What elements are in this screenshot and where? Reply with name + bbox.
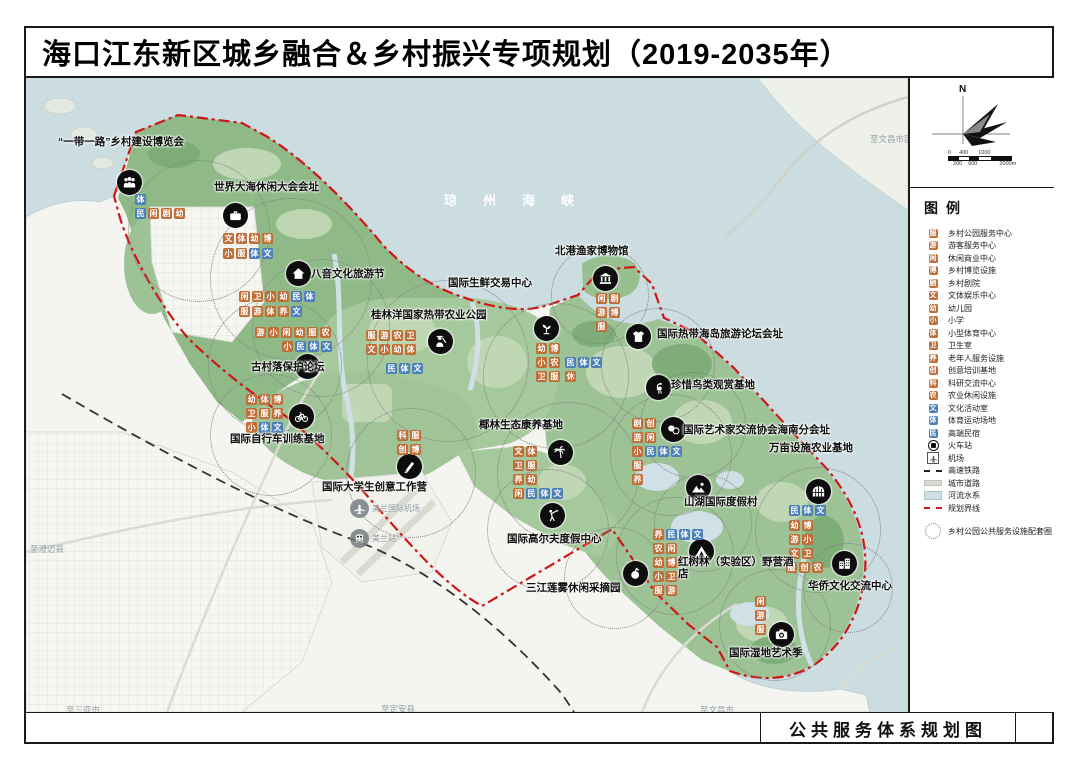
site-label: 华侨文化交流中心 (808, 580, 892, 592)
shirt-icon (626, 324, 651, 349)
legend-item: 幼幼儿园 (924, 302, 1054, 314)
facility-badge: 博 (666, 557, 677, 568)
edge-destination-label: 至澄迈县 (30, 543, 64, 555)
facility-badge: 小 (802, 534, 813, 545)
edge-destination-label: 至定安县 (381, 703, 415, 712)
site-label: 八音文化旅游节 (311, 268, 385, 280)
legend-item: 游游客服务中心 (924, 240, 1054, 252)
legend-item: 服乡村公园服务中心 (924, 227, 1054, 239)
legend-badge: 小 (924, 316, 942, 325)
legend-item: 创创意培训基地 (924, 365, 1054, 377)
facility-badge: 闲 (645, 432, 656, 443)
facility-badge: 休 (565, 371, 576, 382)
facility-badge: 民 (565, 357, 576, 368)
facility-badge: 体 (399, 363, 410, 374)
facility-badge: 民 (645, 446, 656, 457)
facility-badge: 剧 (632, 418, 643, 429)
facility-badge-row: 服 (632, 460, 645, 471)
farmer-icon (428, 329, 453, 354)
facility-badge-row: 小民体文 (632, 446, 684, 457)
facility-badge: 文 (591, 357, 602, 368)
case-icon (223, 203, 248, 228)
facility-badge: 体 (236, 233, 247, 244)
legend-item: 小小学 (924, 315, 1054, 327)
legend-item: 体体育运动场地 (924, 415, 1054, 427)
coverage-circle-swatch (924, 523, 942, 539)
facility-badge-row: 民体文 (565, 357, 604, 368)
facility-badge: 幼 (536, 343, 547, 354)
facility-badge-row: 服 (755, 624, 768, 635)
legend-item-label: 河流水系 (948, 490, 980, 501)
legend-badge: 养 (924, 354, 942, 363)
facility-badge: 文 (552, 488, 563, 499)
facility-badge: 游 (379, 330, 390, 341)
facility-badge: 小 (536, 357, 547, 368)
bottom-strip: 公共服务体系规划图 (26, 712, 1052, 744)
site-label: 国际高尔夫度假中心 (507, 533, 602, 545)
masks-icon (661, 417, 686, 442)
facility-badge-row: 文小幼体 (366, 344, 418, 355)
museum-icon (593, 266, 618, 291)
facility-badge: 民 (295, 341, 306, 352)
facility-badge: 剧 (609, 293, 620, 304)
sea-label: 琼州海峡 (444, 190, 600, 209)
facility-badge-row: 农闲 (653, 543, 679, 554)
legend-item: 文文化活动室 (924, 402, 1054, 414)
facility-badge: 农 (653, 543, 664, 554)
legend-item: 博乡村博览设施 (924, 265, 1054, 277)
facility-badge: 博 (549, 343, 560, 354)
legend-item-label: 文体娱乐中心 (948, 290, 996, 301)
facility-badge: 小 (632, 446, 643, 457)
facility-badge: 小 (223, 248, 234, 259)
facility-badge: 幼 (294, 327, 305, 338)
legend-item: 火车站 (924, 440, 1054, 452)
legend-badge: 闲 (924, 254, 942, 263)
site-label: 国际湿地艺术季 (729, 647, 803, 659)
facility-badge: 科 (397, 430, 408, 441)
legend-item-label: 科研交流中心 (948, 378, 996, 389)
facility-badge: 服 (410, 430, 421, 441)
facility-badge: 服 (653, 585, 664, 596)
facility-badge: 民 (526, 488, 537, 499)
camera-icon (769, 622, 794, 647)
facility-badge: 民 (789, 505, 800, 516)
facility-badge: 创 (645, 418, 656, 429)
site-label: 红树林（实验区）野营酒店 (678, 556, 798, 581)
site-label: 桂林洋国家热带农业公园 (371, 309, 487, 321)
facility-badge: 文 (272, 422, 283, 433)
facility-badge: 养 (632, 474, 643, 485)
facility-badge: 服 (549, 371, 560, 382)
legend-item-label: 小学 (948, 315, 964, 326)
legend-item-label: 体育运动场地 (948, 415, 996, 426)
people-icon (117, 170, 142, 195)
facility-badge: 幼 (249, 233, 260, 244)
facility-badge: 体 (679, 529, 690, 540)
house-icon (286, 261, 311, 286)
facility-badge-row: 小农 (536, 357, 562, 368)
compass-box: N 04001000 (910, 78, 1054, 188)
legend-badge: 剧 (924, 279, 942, 288)
facility-badge-row: 卫服养 (246, 408, 285, 419)
facility-badge: 小 (268, 327, 279, 338)
facility-badge: 养 (272, 408, 283, 419)
facility-badge-row: 服 (596, 321, 609, 332)
sheet-label-box: 公共服务体系规划图 (760, 713, 1016, 744)
building-icon (832, 551, 857, 576)
facility-badge-row: 游小闲幼服农 (255, 327, 333, 338)
facility-badge: 体 (249, 248, 260, 259)
facility-badge: 游 (255, 327, 266, 338)
scale-bottom-labels: 2006002000m (948, 161, 1024, 167)
palm-icon (548, 440, 573, 465)
facility-badge-row: 游博 (596, 307, 622, 318)
legend-item: 养老年人服务设施 (924, 352, 1054, 364)
facility-badge: 博 (802, 520, 813, 531)
facility-badge: 幼 (392, 344, 403, 355)
pen-icon (397, 454, 422, 479)
facility-badge: 文 (692, 529, 703, 540)
facility-badge: 卫 (252, 291, 263, 302)
legend-item: 机场 (924, 452, 1054, 464)
facility-badge: 闲 (596, 293, 607, 304)
facility-badge: 服 (755, 624, 766, 635)
facility-badge-row: 闲民体文 (513, 488, 565, 499)
facility-badge: 服 (239, 306, 250, 317)
legend-item-label: 老年人服务设施 (948, 353, 1004, 364)
facility-badge: 服 (307, 327, 318, 338)
facility-badge: 养 (278, 306, 289, 317)
facility-badge: 卫 (405, 330, 416, 341)
facility-badge: 游 (596, 307, 607, 318)
facility-badge: 服 (366, 330, 377, 341)
facility-badge: 民 (666, 529, 677, 540)
facility-badge: 服 (236, 248, 247, 259)
facility-badge: 体 (578, 357, 589, 368)
facility-badge-row: 小卫 (653, 571, 679, 582)
facility-badge-row: 游 (755, 610, 768, 621)
facility-badge-row: 休 (565, 371, 578, 382)
facility-badge-row: 服游体养文 (239, 306, 304, 317)
legend-item-label: 文化活动室 (948, 403, 988, 414)
legend-item-label: 乡村剧院 (948, 278, 980, 289)
edge-destination-label: 至三亚市 (66, 704, 100, 712)
facility-badge: 小 (265, 291, 276, 302)
legend-item-label: 农业休闲设施 (948, 390, 996, 401)
legend-item: 乡村公园公共服务设施配套圈 (924, 518, 1054, 544)
legend-badge: 游 (924, 241, 942, 250)
legend-badge: 科 (924, 379, 942, 388)
facility-badge: 游 (632, 432, 643, 443)
facility-badge: 闲 (513, 488, 524, 499)
legend-item-label: 城市道路 (948, 478, 980, 489)
legend-badge: 创 (924, 366, 942, 375)
legend-badge: 服 (924, 229, 942, 238)
facility-badge: 文 (412, 363, 423, 374)
facility-badge: 博 (410, 444, 421, 455)
facility-badge: 文 (513, 446, 524, 457)
facility-badge-row: 小服体文 (223, 248, 275, 259)
facility-badge: 幼 (278, 291, 289, 302)
facility-badge: 卫 (246, 408, 257, 419)
facility-badge-row: 卫服 (536, 371, 562, 382)
facility-badge: 民 (291, 291, 302, 302)
facility-label: 美兰站 (372, 533, 396, 544)
legend-item-label: 高速铁路 (948, 465, 980, 476)
water-swatch (924, 491, 942, 500)
facility-badge-row: 幼体博 (246, 394, 285, 405)
plan-sheet: 海口江东新区城乡融合＆乡村振兴专项规划（2019-2035年） (0, 0, 1080, 764)
legend-item: 闲休闲商业中心 (924, 252, 1054, 264)
facility-badge-row: 幼博 (653, 557, 679, 568)
facility-badge-row: 小民体文 (282, 341, 334, 352)
facility-badge: 农 (812, 562, 823, 573)
legend-badge: 民 (924, 429, 942, 438)
facility-badge: 创 (397, 444, 408, 455)
boundary-swatch (924, 507, 942, 509)
facility-badge-row: 创博 (397, 444, 423, 455)
facility-badge: 游 (252, 306, 263, 317)
legend-item: 科科研交流中心 (924, 377, 1054, 389)
legend-badge: 幼 (924, 304, 942, 313)
facility-badge: 服 (632, 460, 643, 471)
facility-badge: 体 (259, 422, 270, 433)
facility-badge-row: 民体文 (386, 363, 425, 374)
legend-item-label: 创意培训基地 (948, 365, 996, 376)
facility-badge: 博 (609, 307, 620, 318)
facility-badge-row: 卫服 (513, 460, 539, 471)
facility-badge: 小 (246, 422, 257, 433)
facility-badge-row: 游闲 (632, 432, 658, 443)
facility-badge-row: 闲 (755, 596, 768, 607)
legend-badge: 体 (924, 416, 942, 425)
facility-badge: 幼 (526, 474, 537, 485)
facility-badge: 卫 (802, 548, 813, 559)
facility-badge: 文 (321, 341, 332, 352)
site-label: 古村落保护论坛 (251, 361, 325, 373)
scale-top-labels: 04001000 (948, 150, 1024, 156)
facility-badge: 闲 (755, 596, 766, 607)
site-label: 山湖国际度假村 (684, 496, 758, 508)
site-label: 国际艺术家交流协会海南分会址 (683, 424, 830, 436)
facility-badge-row: 体 (135, 194, 148, 205)
facility-badge: 幼 (174, 208, 185, 219)
legend-title: 图例 (924, 198, 1054, 218)
legend: 图例 服乡村公园服务中心游游客服务中心闲休闲商业中心博乡村博览设施剧乡村剧院文文… (910, 188, 1054, 712)
facility-badge: 体 (265, 306, 276, 317)
facility-badge: 文 (366, 344, 377, 355)
facility-badge: 小 (282, 341, 293, 352)
facility-badge: 体 (526, 446, 537, 457)
legend-item: 体小型体育中心 (924, 327, 1054, 339)
facility-badge-row: 幼博 (789, 520, 815, 531)
site-label: 世界大海休闲大会会址 (214, 181, 319, 193)
site-label: 国际热带海岛旅游论坛会址 (657, 328, 783, 340)
legend-item-label: 乡村博览设施 (948, 265, 996, 276)
legend-badge: 体 (924, 329, 942, 338)
legend-item: 民高端民宿 (924, 427, 1054, 439)
facility-badge-row: 剧创 (632, 418, 658, 429)
facility-badge: 游 (666, 585, 677, 596)
facility-badge: 卫 (666, 571, 677, 582)
facility-badge: 养 (653, 529, 664, 540)
facility-badge-row: 闲剧 (596, 293, 622, 304)
map-area: 体民闲剧幼“一带一路”乡村建设博览会文体幼博小服体文世界大海休闲大会会址闲卫小幼… (26, 78, 908, 712)
facility-badge-row: 科服 (397, 430, 423, 441)
legend-item-label: 小型体育中心 (948, 328, 996, 339)
site-label: 椰林生态康养基地 (479, 419, 563, 431)
facility-badge: 博 (262, 233, 273, 244)
facility-badge: 民 (386, 363, 397, 374)
facility-badge: 体 (658, 446, 669, 457)
facility-badge: 游 (755, 610, 766, 621)
facility-badge: 体 (405, 344, 416, 355)
legend-item: 高速铁路 (924, 465, 1054, 477)
facility-badge: 服 (596, 321, 607, 332)
facility-badge: 农 (392, 330, 403, 341)
site-label: “一带一路”乡村建设博览会 (58, 136, 184, 148)
legend-badge: 农 (924, 391, 942, 400)
facility-badge: 文 (223, 233, 234, 244)
facility-badge: 体 (135, 194, 146, 205)
facility-badge: 体 (304, 291, 315, 302)
legend-badge: 博 (924, 266, 942, 275)
edge-destination-label: 至文昌市 (700, 704, 734, 712)
golf-icon (540, 503, 565, 528)
facility-badge: 幼 (789, 520, 800, 531)
legend-badge: 文 (924, 291, 942, 300)
legend-item-label: 乡村公园服务中心 (948, 228, 1012, 239)
facility-badge: 卫 (536, 371, 547, 382)
sidebar: N 04001000 (908, 78, 1054, 712)
facility-badge: 体 (539, 488, 550, 499)
legend-item: 卫卫生室 (924, 340, 1054, 352)
bike-icon (289, 404, 314, 429)
facility-badge: 文 (815, 505, 826, 516)
legend-item-label: 乡村公园公共服务设施配套圈 (948, 526, 1052, 537)
facility-badge: 幼 (246, 394, 257, 405)
legend-item-label: 机场 (948, 453, 964, 464)
facility-badge-row: 游小 (789, 534, 815, 545)
sheet-frame: 海口江东新区城乡融合＆乡村振兴专项规划（2019-2035年） (24, 26, 1054, 744)
facility-badge: 农 (549, 357, 560, 368)
train-icon (350, 529, 369, 548)
page-title: 海口江东新区城乡融合＆乡村振兴专项规划（2019-2035年） (42, 31, 850, 73)
facility-badge-row: 服游农卫 (366, 330, 418, 341)
site-label: 北港渔家博物馆 (555, 245, 629, 257)
facility-badge-row: 养 (632, 474, 645, 485)
facility-badge: 体 (308, 341, 319, 352)
facility-badge-row: 服游 (653, 585, 679, 596)
site-label: 国际大学生创意工作营 (322, 481, 427, 493)
facility-badge: 闲 (239, 291, 250, 302)
legend-item: 河流水系 (924, 490, 1054, 502)
facility-badge: 文 (262, 248, 273, 259)
legend-badge: 卫 (924, 341, 942, 350)
facility-badge: 养 (513, 474, 524, 485)
site-label: 珍惜鸟类观赏基地 (671, 379, 755, 391)
plane-icon (350, 499, 369, 518)
facility-badge: 农 (320, 327, 331, 338)
facility-badge-row: 民闲剧幼 (135, 208, 187, 219)
facility-badge: 创 (799, 562, 810, 573)
facility-badge: 卫 (513, 460, 524, 471)
facility-badge: 文 (291, 306, 302, 317)
train-station-icon (924, 440, 942, 451)
legend-list: 服乡村公园服务中心游游客服务中心闲休闲商业中心博乡村博览设施剧乡村剧院文文体娱乐… (924, 227, 1054, 544)
legend-item: 城市道路 (924, 477, 1054, 489)
bird-icon (646, 375, 671, 400)
legend-item-label: 休闲商业中心 (948, 253, 996, 264)
sheet-label: 公共服务体系规划图 (789, 716, 987, 741)
legend-item: 剧乡村剧院 (924, 277, 1054, 289)
airport-icon (924, 452, 942, 464)
facility-badge-row: 幼博 (536, 343, 562, 354)
facility-badge-row: 小体文 (246, 422, 285, 433)
site-label: 国际生鲜交易中心 (448, 277, 532, 289)
legend-item: 农农业休闲设施 (924, 390, 1054, 402)
facility-badge-row: 文体 (513, 446, 539, 457)
site-label: 国际自行车训练基地 (230, 433, 325, 445)
facility-badge: 服 (526, 460, 537, 471)
legend-item-label: 幼儿园 (948, 303, 972, 314)
edge-destination-label: 至文昌市区 (870, 133, 908, 145)
fruit-icon (623, 561, 648, 586)
facility-badge: 小 (379, 344, 390, 355)
legend-item-label: 卫生室 (948, 340, 972, 351)
compass-rose-icon (910, 92, 1056, 154)
facility-badge: 游 (789, 534, 800, 545)
legend-item-label: 游客服务中心 (948, 240, 996, 251)
facility-badge: 体 (802, 505, 813, 516)
facility-badge-row: 文体幼博 (223, 233, 275, 244)
facility-badge: 闲 (281, 327, 292, 338)
facility-badge: 剧 (161, 208, 172, 219)
facility-badge: 幼 (653, 557, 664, 568)
facility-badge: 文 (671, 446, 682, 457)
facility-badge: 体 (259, 394, 270, 405)
sprout-icon (534, 316, 559, 341)
rail-line-swatch (924, 470, 942, 472)
facility-badge: 小 (653, 571, 664, 582)
road-swatch (924, 480, 942, 486)
facility-badge: 服 (259, 408, 270, 419)
legend-item-label: 规划界线 (948, 503, 980, 514)
facility-badge: 闲 (666, 543, 677, 554)
legend-item: 规划界线 (924, 502, 1054, 514)
facility-badge-row: 养幼 (513, 474, 539, 485)
facility-badge: 民 (135, 208, 146, 219)
legend-badge: 文 (924, 404, 942, 413)
facility-label: 美兰国际机场 (372, 503, 420, 514)
legend-item-label: 火车站 (948, 440, 972, 451)
facility-badge-row: 养民体文 (653, 529, 705, 540)
facility-badge: 博 (272, 394, 283, 405)
scale-bar: 04001000 2006002000m (948, 150, 1024, 167)
title-bar: 海口江东新区城乡融合＆乡村振兴专项规划（2019-2035年） (26, 28, 1052, 78)
site-label: 三江莲雾休闲采摘园 (526, 582, 621, 594)
facility-badge: 闲 (148, 208, 159, 219)
legend-item: 文文体娱乐中心 (924, 290, 1054, 302)
facility-badge-row: 闲卫小幼民体 (239, 291, 317, 302)
legend-item-label: 高端民宿 (948, 428, 980, 439)
greenhouse-icon (806, 479, 831, 504)
facility-badge-row: 民体文 (789, 505, 828, 516)
site-label: 万亩设施农业基地 (769, 442, 853, 454)
